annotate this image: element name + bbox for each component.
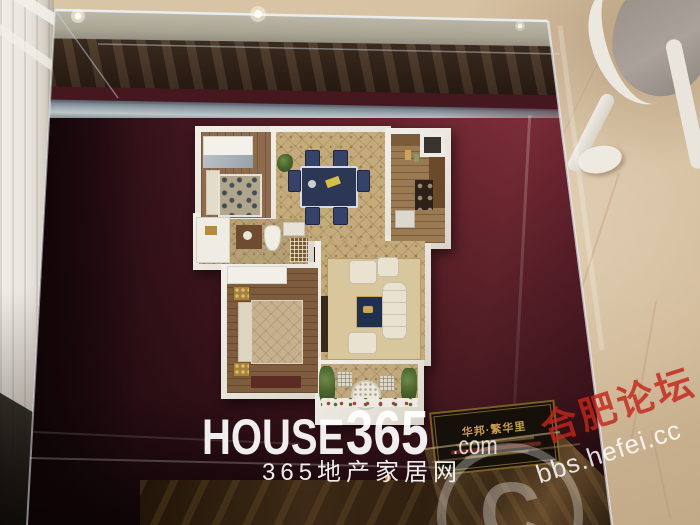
cabinet-gold-item [205, 226, 217, 235]
glass-display-case: 华邦·繁华里 [0, 0, 700, 525]
armchair [377, 257, 399, 277]
towel-shelf [283, 222, 305, 236]
balcony-plant [401, 368, 417, 402]
dining-chair [333, 150, 348, 167]
shower-tile [290, 238, 308, 262]
balcony-railing [321, 398, 418, 407]
wardrobe [203, 136, 253, 156]
nightstand [233, 286, 250, 301]
balcony-chair [337, 372, 352, 387]
nightstand [233, 362, 250, 377]
dining-chair [288, 170, 301, 192]
balcony-chair [379, 376, 394, 391]
photo-scene: 华邦·繁华里 HOUS [0, 0, 700, 525]
sofa [382, 282, 407, 340]
marble-vein [629, 301, 657, 449]
shoe-cabinet [196, 217, 230, 263]
kitchen-stove [415, 180, 433, 210]
marble-vein [578, 173, 620, 297]
project-name-plaque: 华邦·繁华里 [429, 400, 561, 477]
dining-chair [305, 207, 320, 225]
kitchen-bottle [405, 150, 411, 160]
armchair [348, 332, 377, 354]
marble-vein [651, 431, 672, 519]
kitchen-bottle [414, 154, 419, 162]
master-dresser [251, 376, 301, 388]
apartment-model [193, 110, 453, 430]
master-bed [251, 300, 303, 364]
kitchen-sink [395, 210, 415, 228]
dining-chair [333, 207, 348, 225]
vanity-sink [243, 231, 252, 240]
bed-blanket [218, 174, 262, 217]
dining-chair [305, 150, 320, 167]
wardrobe-glass [203, 155, 253, 168]
coffee-table-tray [363, 306, 373, 313]
tv-cabinet [321, 296, 328, 352]
master-wardrobe [227, 266, 287, 284]
table-plate [308, 180, 316, 188]
kitchen-window-box [420, 133, 445, 157]
armchair [349, 260, 377, 284]
dining-chair [357, 170, 370, 192]
plaque-title: 华邦·繁华里 [461, 417, 527, 440]
